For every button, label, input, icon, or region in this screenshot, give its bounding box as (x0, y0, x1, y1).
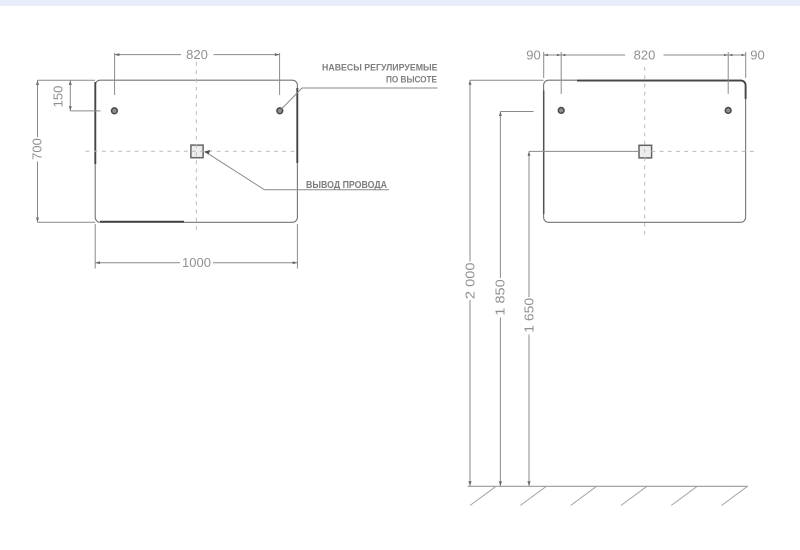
svg-text:90: 90 (750, 47, 764, 62)
svg-text:НАВЕСЫ РЕГУЛИРУЕМЫЕ: НАВЕСЫ РЕГУЛИРУЕМЫЕ (322, 63, 438, 74)
svg-text:700: 700 (30, 138, 45, 160)
svg-text:1 850: 1 850 (493, 279, 508, 316)
svg-text:2 000: 2 000 (462, 263, 477, 300)
svg-text:1000: 1000 (182, 255, 211, 270)
svg-text:820: 820 (634, 47, 656, 62)
svg-text:820: 820 (186, 47, 208, 62)
svg-text:1 650: 1 650 (521, 298, 536, 333)
svg-text:ВЫВОД ПРОВОДА: ВЫВОД ПРОВОДА (306, 180, 388, 191)
svg-text:ПО ВЫСОТЕ: ПО ВЫСОТЕ (386, 74, 437, 85)
svg-text:90: 90 (526, 47, 540, 62)
svg-text:150: 150 (51, 86, 66, 108)
